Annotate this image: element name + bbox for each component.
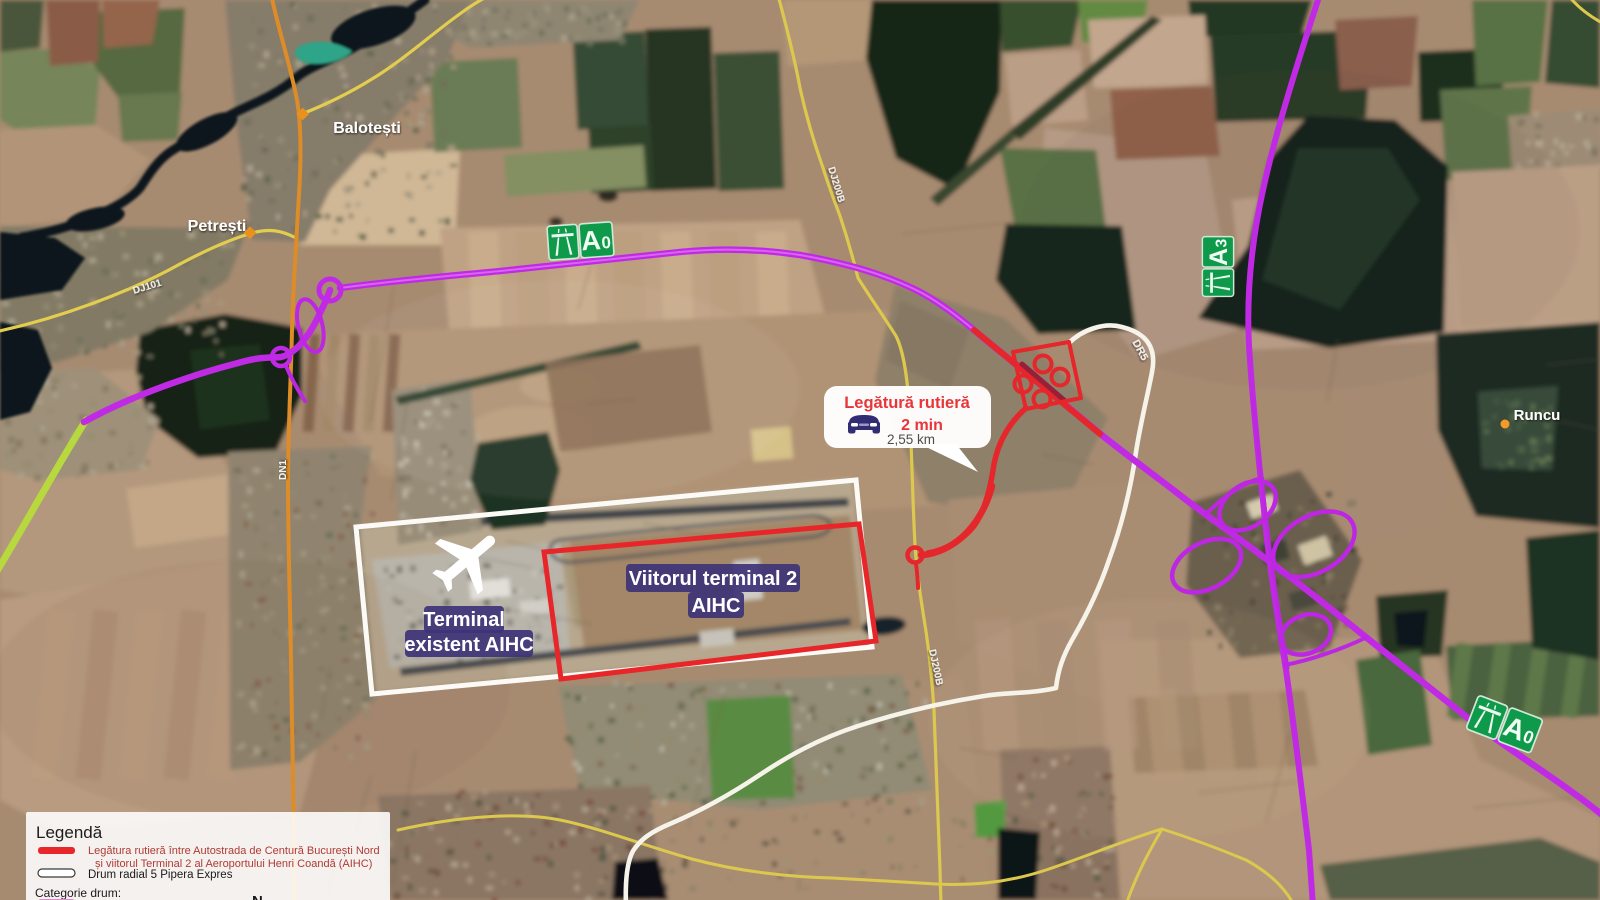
svg-text:3: 3 xyxy=(1213,238,1230,247)
svg-text:Terminal: Terminal xyxy=(423,609,505,631)
svg-text:N: N xyxy=(252,893,263,900)
svg-text:AIHC: AIHC xyxy=(692,595,741,617)
svg-text:Viitorul terminal 2: Viitorul terminal 2 xyxy=(629,568,798,590)
svg-text:Legătură rutieră: Legătură rutieră xyxy=(844,394,970,412)
svg-text:A: A xyxy=(1206,248,1233,266)
svg-text:Legătura rutieră între Autostr: Legătura rutieră între Autostrada de Cen… xyxy=(88,845,380,857)
svg-text:A: A xyxy=(580,225,602,256)
svg-text:Categorie drum:: Categorie drum: xyxy=(35,886,121,900)
svg-text:Legendă: Legendă xyxy=(36,823,103,842)
svg-text:Runcu: Runcu xyxy=(1514,407,1561,424)
svg-text:2,55 km: 2,55 km xyxy=(887,432,935,447)
svg-text:Petrești: Petrești xyxy=(188,218,247,235)
svg-text:DN1: DN1 xyxy=(278,460,289,480)
svg-text:Balotești: Balotești xyxy=(333,120,401,137)
svg-text:Drum radial 5 Pipera Expres: Drum radial 5 Pipera Expres xyxy=(88,869,233,881)
svg-text:0: 0 xyxy=(601,233,612,253)
svg-text:existent AIHC: existent AIHC xyxy=(404,634,533,656)
